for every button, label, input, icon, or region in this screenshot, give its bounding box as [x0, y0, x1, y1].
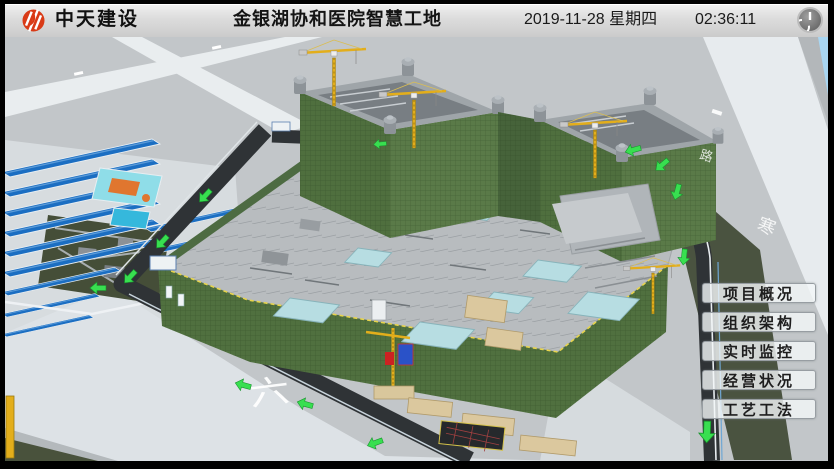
menu-item-project-overview[interactable]: 项目概况	[702, 283, 816, 303]
clock-display: 02:36:11	[695, 4, 756, 35]
menu-item-organization[interactable]: 组织架构	[702, 312, 816, 332]
date-display: 2019-11-28 星期四	[524, 4, 657, 35]
power-button[interactable]	[797, 7, 823, 33]
page-title: 金银湖协和医院智慧工地	[233, 4, 442, 35]
power-icon	[799, 9, 821, 31]
menu-item-construction-methods[interactable]: 工艺工法	[702, 399, 816, 419]
nav-menu: 项目概况 组织架构 实时监控 经营状况 工艺工法	[702, 283, 818, 428]
road-label: 六	[247, 372, 291, 413]
smart-site-dashboard: 中天建设 金银湖协和医院智慧工地 2019-11-28 星期四 02:36:11	[5, 4, 828, 461]
header-bar: 中天建设 金银湖协和医院智慧工地 2019-11-28 星期四 02:36:11	[5, 4, 828, 39]
menu-item-business-status[interactable]: 经营状况	[702, 370, 816, 390]
menu-item-live-monitoring[interactable]: 实时监控	[702, 341, 816, 361]
company-name: 中天建设	[55, 4, 139, 35]
company-logo-icon	[21, 8, 46, 33]
